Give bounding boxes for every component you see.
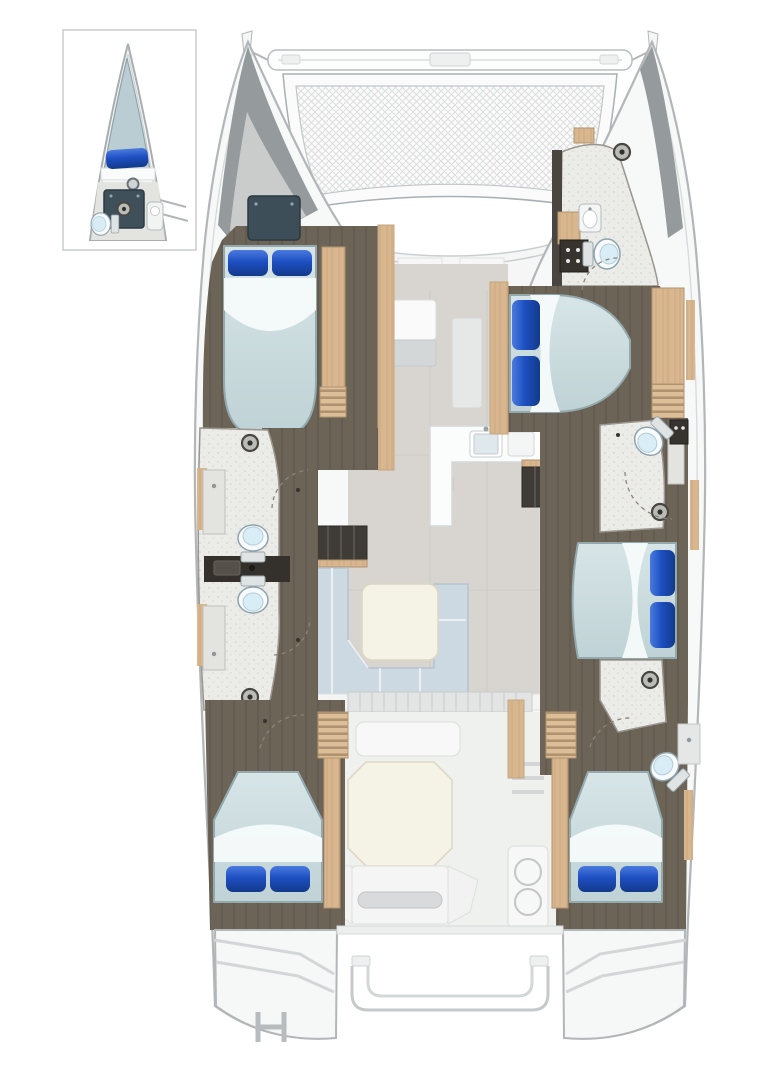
aft-head-sink [678, 724, 700, 764]
wood-post [324, 758, 340, 908]
screw-icon [254, 202, 257, 205]
wood-post [552, 758, 568, 908]
inset-berth-shelf [101, 168, 155, 180]
pillow [228, 250, 268, 276]
dinette-table [362, 584, 438, 660]
faucet-icon [212, 652, 216, 656]
pillow [272, 250, 312, 276]
gunwale-wood [686, 300, 695, 380]
davit-rail-outer [352, 966, 548, 1010]
crossbeam [242, 31, 658, 70]
inset-screw-icon [137, 195, 140, 198]
galley-sink-basin [474, 434, 498, 454]
wood-trim [558, 212, 580, 244]
cabinet-dot [576, 259, 580, 263]
cabin-steps-louver [320, 387, 346, 417]
hull-joint-wood [490, 282, 508, 434]
floor-plan-canvas [0, 0, 771, 1080]
wardrobe [322, 247, 345, 387]
inset-toilet-icon [91, 213, 119, 236]
starboard-forward-cabin [490, 282, 684, 434]
screw-icon [290, 202, 293, 205]
inset-pillow [105, 148, 148, 170]
pillow [650, 602, 675, 648]
pillow [512, 300, 540, 350]
cockpit-forward-bench [356, 722, 460, 756]
lounge-seat [392, 300, 436, 340]
bench-roller-cushion [358, 892, 442, 908]
inset-drain-icon [118, 203, 131, 216]
door-handle-dot [616, 433, 620, 437]
toilet-icon [238, 576, 268, 613]
door-handle-dot [263, 719, 267, 723]
faucet-icon [212, 484, 216, 488]
wardrobe [652, 288, 684, 384]
door-handle-dot [296, 638, 300, 642]
inset-hatch-icon [128, 179, 139, 190]
pillow [620, 866, 658, 892]
beam-center-fitting [430, 53, 470, 66]
beam-end-fitting [282, 55, 300, 64]
hull-joint-wood [508, 700, 524, 778]
gunwale-wood [684, 790, 693, 860]
divider-knob [249, 565, 255, 571]
shower-drain-icon [642, 672, 658, 688]
cabin-steps-louver [652, 384, 684, 418]
cabinet-dot [566, 248, 570, 252]
inset-sink-basin [151, 207, 160, 216]
divider-fixture [214, 561, 240, 575]
cabin-steps-louver [546, 712, 576, 758]
floor-plan-page [0, 0, 771, 1080]
pillow [650, 550, 675, 596]
shower-drain-icon [652, 504, 668, 520]
inset-screw-icon [110, 195, 113, 198]
toilet-icon [238, 525, 268, 562]
starboard-midship [540, 414, 688, 702]
pillow [512, 356, 540, 406]
davit-rail-inner [368, 966, 532, 996]
faucet-icon [687, 738, 691, 742]
cockpit-table [348, 762, 452, 866]
aft-crossbar [337, 926, 563, 934]
shower-drain-icon [614, 144, 630, 160]
wood-trim [574, 128, 594, 143]
vanity [203, 470, 225, 534]
shower-drain-icon [242, 435, 258, 451]
lounge-console [452, 318, 482, 408]
faucet-icon [484, 427, 489, 432]
lounge-seat-shadow [392, 340, 436, 366]
door-handle-dot [296, 488, 300, 492]
toilet-icon [583, 239, 620, 269]
davit-cleat [352, 956, 370, 966]
vanity [668, 438, 684, 484]
vanity [203, 606, 225, 670]
stair-tread-wood [315, 560, 367, 567]
cabinet-dot [576, 248, 580, 252]
pillow [578, 866, 616, 892]
davit-cleat [530, 956, 548, 966]
hull-joint-wood [378, 225, 394, 470]
sink-icon [579, 204, 601, 232]
cabinet-dot [566, 259, 570, 263]
cabinet-dot [681, 426, 685, 430]
cabinet-dot [674, 426, 678, 430]
pillow [226, 866, 266, 892]
gunwale-wood [690, 480, 699, 550]
galley-cooktop [508, 432, 534, 456]
pillow [270, 866, 310, 892]
cabin-steps-louver [318, 712, 348, 758]
port-aft-cabin [205, 700, 348, 930]
beam-end-fitting [600, 55, 618, 64]
stern [214, 926, 686, 1042]
bow-inset-detail [63, 30, 196, 250]
